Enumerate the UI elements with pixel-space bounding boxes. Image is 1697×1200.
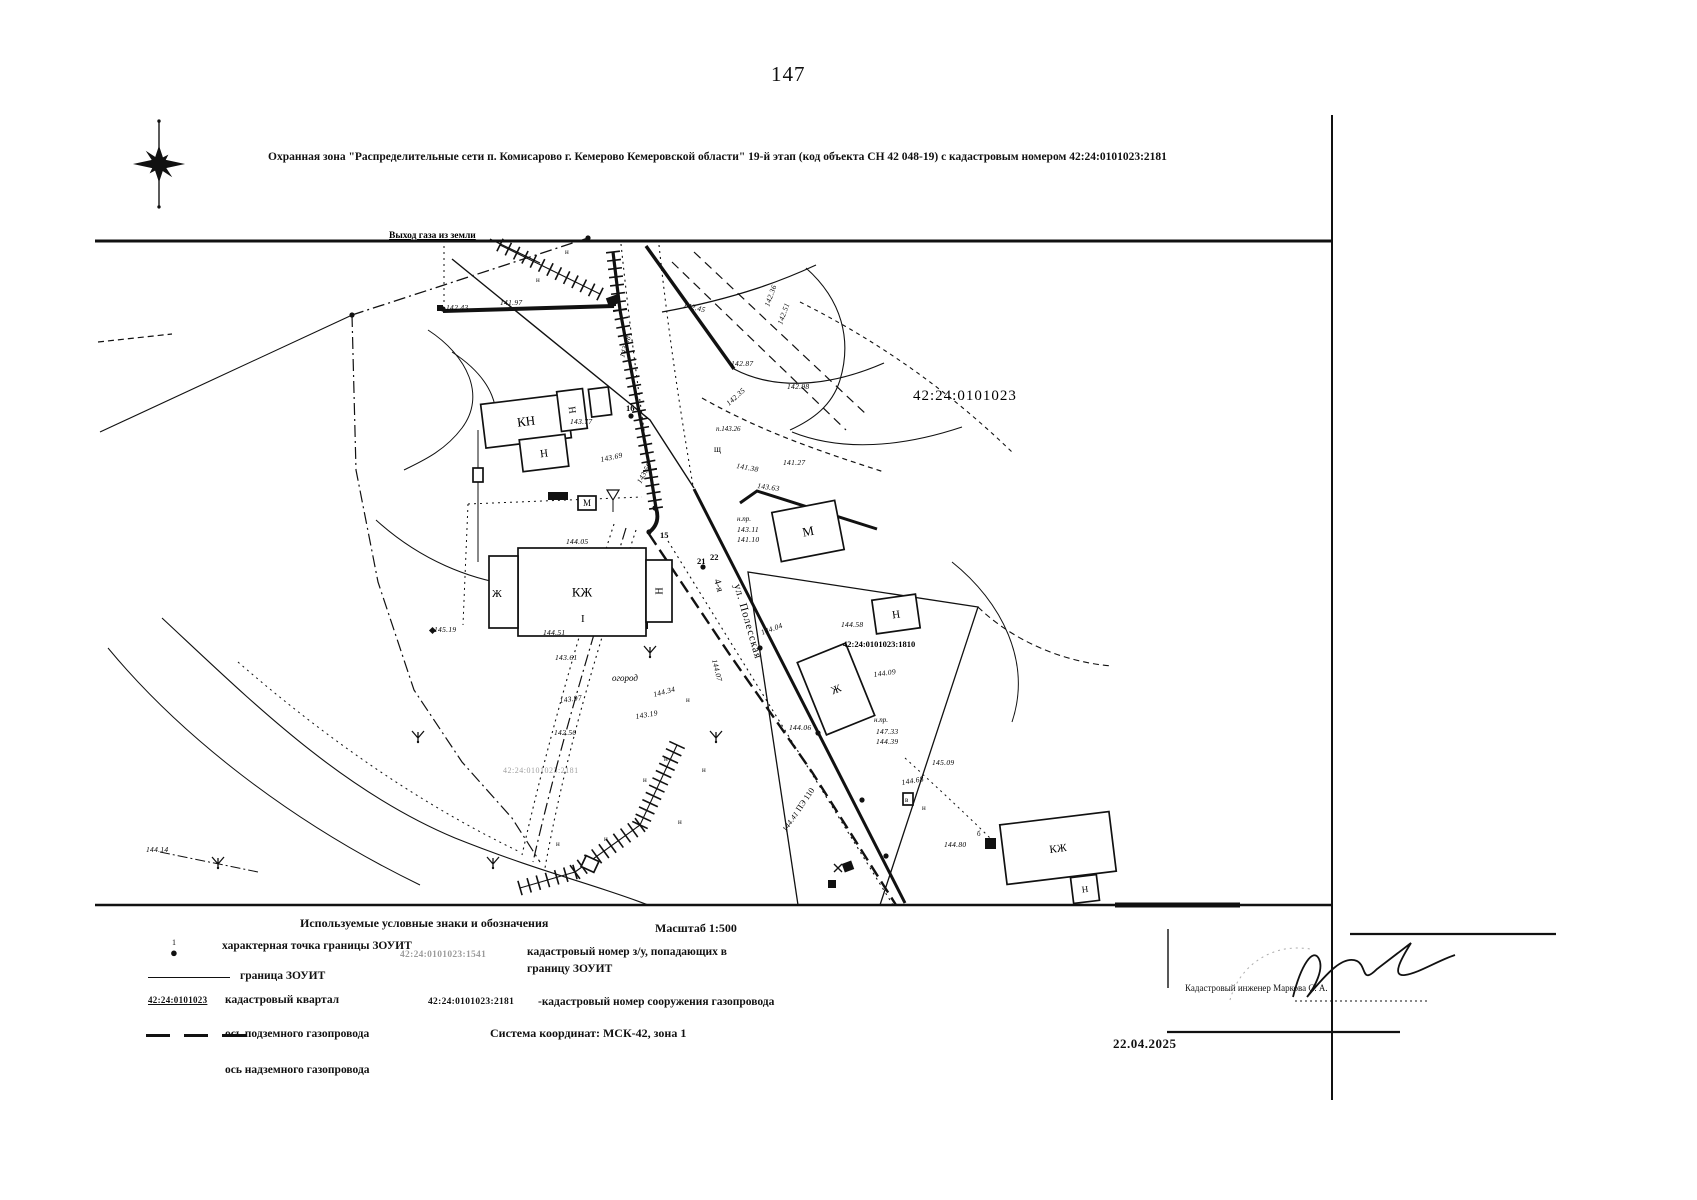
elevation-mark: 144.34 <box>652 684 676 699</box>
boundary-point-icon: ● <box>170 950 178 956</box>
map-label: щ <box>714 444 721 454</box>
building: Ж <box>797 643 874 735</box>
map-label: Выход газа из земли <box>389 231 476 241</box>
elevation-mark: 144.14 <box>146 845 168 854</box>
building-label: Н <box>655 587 666 594</box>
tree-icons <box>212 646 722 869</box>
elevation-mark: 143.69 <box>600 450 624 463</box>
parcel-ref-number: 42:24:0101023:1541 <box>400 950 486 960</box>
elevation-mark: 142.87 <box>731 359 753 368</box>
elevation-mark: 142.50 <box>554 728 576 737</box>
elevation-mark: 143.08 <box>617 334 632 358</box>
building-label: Н <box>539 448 548 461</box>
map-label: 42:24:0101023:2181 <box>503 766 579 775</box>
legend-item-aboveground-axis: ось надземного газопровода <box>225 1062 370 1079</box>
building: М <box>578 496 596 510</box>
map-label: н <box>565 248 569 256</box>
map-label: 16 <box>626 403 635 413</box>
building: Н <box>646 560 672 622</box>
map-label: н <box>556 840 560 848</box>
map-label: п.143.26 <box>716 425 741 433</box>
map-label: 22 <box>710 552 719 562</box>
map-label: Ж <box>492 588 502 600</box>
map-label: 21 <box>697 556 706 566</box>
building-label: КЖ <box>1049 842 1068 856</box>
building-label: Н <box>567 406 579 415</box>
elevation-mark: 143.61 <box>555 653 577 662</box>
elevation-mark: 142.36 <box>762 284 778 308</box>
building: Н <box>1071 875 1100 904</box>
cadastral-quarter-number: 42:24:0101023 <box>148 995 207 1005</box>
signature-and-stamp <box>1215 925 1545 1035</box>
legend-header: Используемые условные знаки и обозначени… <box>300 916 548 931</box>
map-label: ПЭ 110 <box>793 786 816 813</box>
elevation-mark: 145.09 <box>932 758 954 767</box>
elevation-mark: 144.06 <box>789 723 811 732</box>
building: Н <box>519 434 569 471</box>
elevation-mark: 144.07 <box>710 658 724 682</box>
document-date: 22.04.2025 <box>1113 1036 1177 1052</box>
elevation-mark: 143.19 <box>635 708 659 721</box>
building-label: Н <box>891 608 901 621</box>
legend-item-quarter: кадастровый квартал <box>225 992 339 1009</box>
map-label: н.пр. <box>737 515 751 523</box>
elevation-mark: 145.19 <box>434 625 456 634</box>
building: М <box>772 500 844 561</box>
elevation-mark: 141.10 <box>737 535 759 544</box>
elevation-mark: 141.97 <box>500 298 522 307</box>
parcel-ref-label: кадастровый номер з/у, попадающих в гран… <box>527 944 762 977</box>
engineer-signature <box>1293 943 1455 997</box>
map-label: н <box>686 696 690 704</box>
map-label: н <box>643 776 647 784</box>
elevation-mark: 143.97 <box>559 693 582 705</box>
elevation-mark: 141.27 <box>783 458 805 467</box>
map-label: I <box>581 613 585 625</box>
elevation-mark: 143.11 <box>737 525 759 534</box>
map-label: н <box>678 818 682 826</box>
map-label: 42:24:0101023 <box>913 388 1017 404</box>
building <box>473 468 483 482</box>
building <box>588 387 611 417</box>
elevation-mark: 147.33 <box>876 727 898 736</box>
map-label: н.пр. <box>874 716 888 724</box>
building: Н <box>872 594 920 634</box>
elevation-mark: 142.35 <box>724 386 747 408</box>
map-label: н <box>664 755 668 763</box>
elevation-mark: 144.51 <box>543 628 565 637</box>
pipeline-ref-number: 42:24:0101023:2181 <box>428 997 514 1007</box>
map-label: н <box>922 804 926 812</box>
stamp-arc <box>1230 948 1310 1000</box>
map-label: огород <box>612 673 638 683</box>
map-label: 4-я <box>711 578 725 594</box>
map-label: 15 <box>660 530 669 540</box>
elevation-mark: 141.38 <box>736 461 760 474</box>
elevation-mark: 144.09 <box>873 667 896 679</box>
legend-item-boundary: граница ЗОУИТ <box>240 968 325 985</box>
elevation-mark: 144.41 <box>780 810 800 834</box>
building-label: КЖ <box>572 585 593 600</box>
map-label: н <box>536 276 540 284</box>
elevation-mark: 142.98 <box>787 382 809 391</box>
map-label: н <box>702 766 706 774</box>
zouit-boundary-line-icon <box>148 977 230 978</box>
coordinate-system-label: Система координат: МСК-42, зона 1 <box>490 1026 686 1041</box>
elevation-mark: 142.43 <box>446 303 468 312</box>
elevation-mark: 144.68 <box>901 774 925 787</box>
map-scale-label: Масштаб 1:500 <box>655 921 737 936</box>
elevation-mark: 142.51 <box>775 302 791 326</box>
map-label: н <box>604 835 608 843</box>
map-label: б <box>977 830 981 838</box>
building: КЖ <box>1000 812 1116 885</box>
building-label: КН <box>516 413 536 430</box>
map-label: 42:24:0101023:1810 <box>843 639 915 649</box>
elevation-mark: 143.77 <box>570 417 592 426</box>
document-page: 147 Охранная зона "Распределительные сет… <box>0 0 1697 1200</box>
building-label: М <box>583 498 591 508</box>
elevation-mark: 144.39 <box>876 737 898 746</box>
elevation-mark: 144.05 <box>566 537 588 546</box>
elevation-mark: 144.58 <box>841 620 863 629</box>
pipeline-ref-label: -кадастровый номер сооружения газопровод… <box>538 994 878 1011</box>
elevation-mark: 144.80 <box>944 840 966 849</box>
legend-item-underground-axis: ось подземного газопровода <box>225 1026 369 1043</box>
